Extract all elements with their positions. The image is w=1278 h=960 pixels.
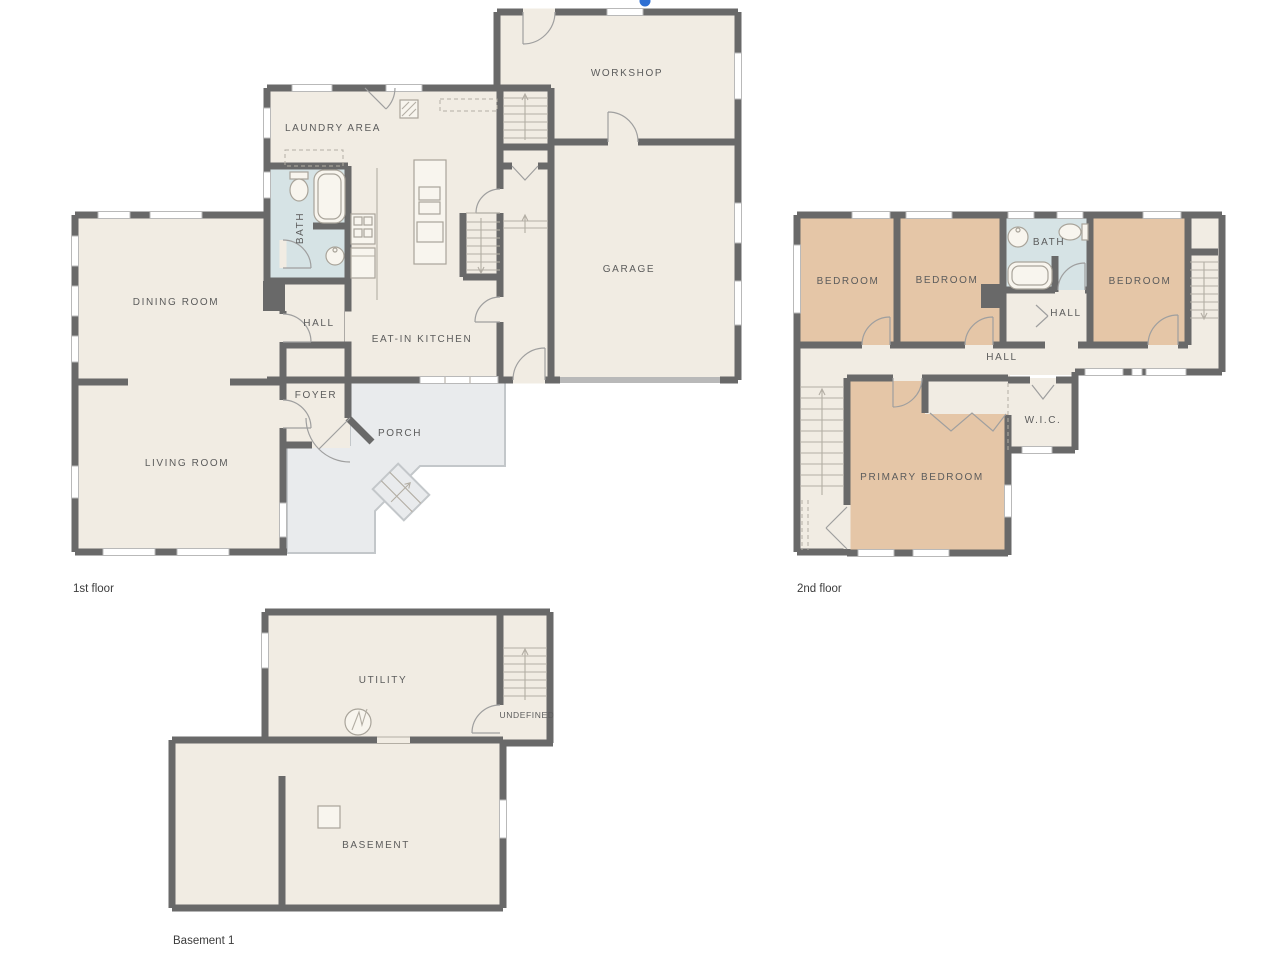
chimney-2 [981,284,1003,308]
room-label-utility: UTILITY [359,675,407,686]
room-label-bedroom-left: BEDROOM [817,276,880,287]
support-post-icon [318,806,340,828]
room-garage [552,142,738,380]
primary-closet-recess [925,378,1008,414]
room-label-basement: BASEMENT [342,840,410,851]
toilet-icon [290,172,308,179]
floorplan-drawing: LAUNDRY AREA WORKSHOP BATH DINING ROOM H… [0,0,1278,960]
floor-caption-first: 1st floor [73,583,114,595]
garage-door [560,377,720,383]
room-label-hall2: HALL [986,352,1017,363]
room-label-dining: DINING ROOM [133,297,220,308]
basement-room-fills [172,612,550,908]
room-label-garage: GARAGE [603,264,655,275]
bathtub-inner [318,174,341,219]
toilet-bowl-icon [290,179,308,201]
room-label-kitchen: EAT-IN KITCHEN [372,334,473,345]
oven-icon [351,248,375,278]
room-label-hall-upper: HALL [1050,308,1081,319]
room-label-bedroom-middle: BEDROOM [916,275,979,286]
room-label-workshop: WORKSHOP [591,68,663,79]
room-label-bath1: BATH [295,212,306,244]
room-label-hall1: HALL [303,318,334,329]
room-label-primary: PRIMARY BEDROOM [860,472,984,483]
island-sink-icon [419,187,440,200]
chimney-1 [263,281,285,311]
water-heater-icon [345,709,371,735]
room-label-porch: PORCH [378,428,422,439]
room-label-wic: W.I.C. [1025,415,1062,426]
second-floor-plan: BEDROOM BEDROOM BATH BEDROOM HALL HALL W… [794,212,1223,557]
room-label-living: LIVING ROOM [145,458,229,469]
room-label-laundry: LAUNDRY AREA [285,123,381,134]
first-floor-plan: LAUNDRY AREA WORKSHOP BATH DINING ROOM H… [72,9,742,556]
room-label-foyer: FOYER [295,390,337,401]
room-stair-strip [500,88,552,380]
floor-caption-basement: Basement 1 [173,935,234,947]
room-label-bath2: BATH [1033,237,1065,248]
floorplan-canvas: LAUNDRY AREA WORKSHOP BATH DINING ROOM H… [0,0,1278,960]
room-label-bedroom-right: BEDROOM [1109,276,1172,287]
basement-plan: UTILITY UNDEFINED BASEMENT [172,612,555,908]
room-label-undefined: UNDEFINED [500,710,555,720]
floor-caption-second: 2nd floor [797,583,842,595]
blue-dot-marker [640,0,651,7]
